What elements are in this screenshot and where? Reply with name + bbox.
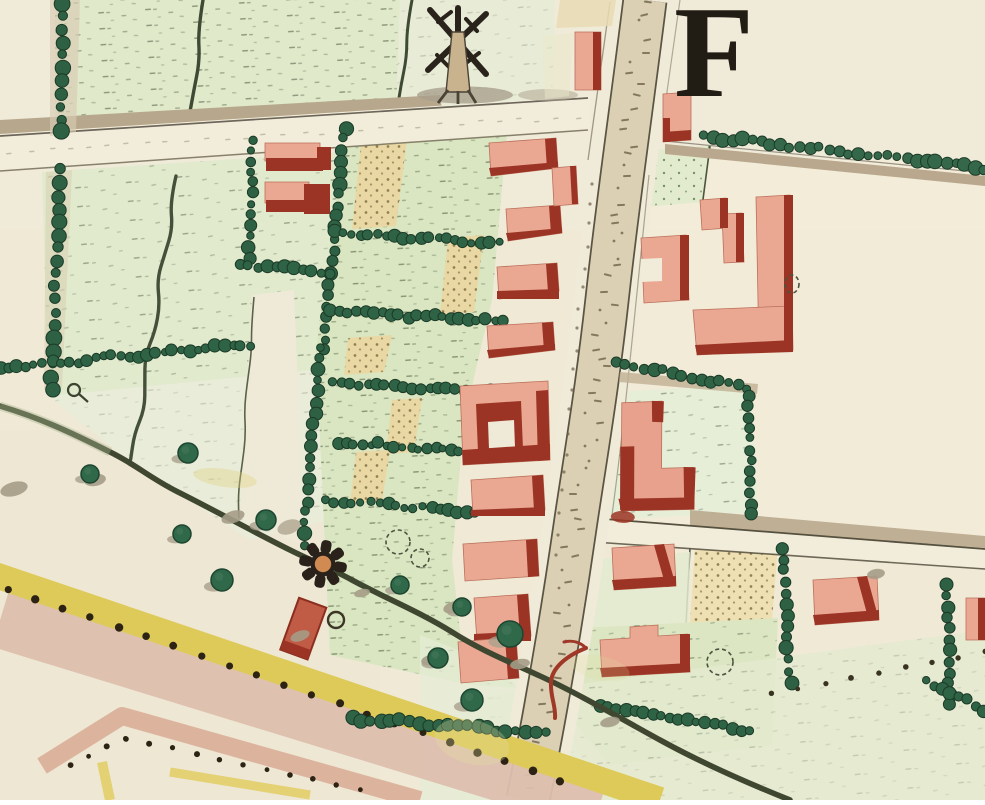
svg-text:F: F xyxy=(674,0,754,125)
